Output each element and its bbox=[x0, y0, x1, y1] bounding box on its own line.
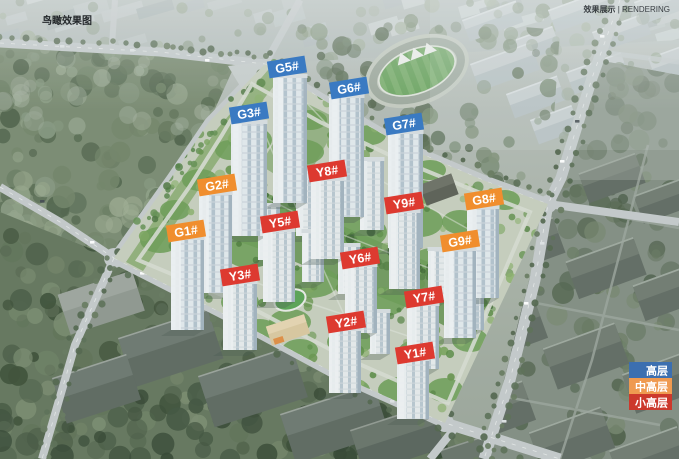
svg-text:高层: 高层 bbox=[646, 364, 668, 378]
svg-text:效果展示 | RENDERING: 效果展示 | RENDERING bbox=[583, 4, 670, 14]
svg-text:中高层: 中高层 bbox=[635, 380, 668, 394]
svg-text:小高层: 小高层 bbox=[634, 396, 668, 410]
svg-text:鸟瞰效果图: 鸟瞰效果图 bbox=[42, 14, 92, 27]
